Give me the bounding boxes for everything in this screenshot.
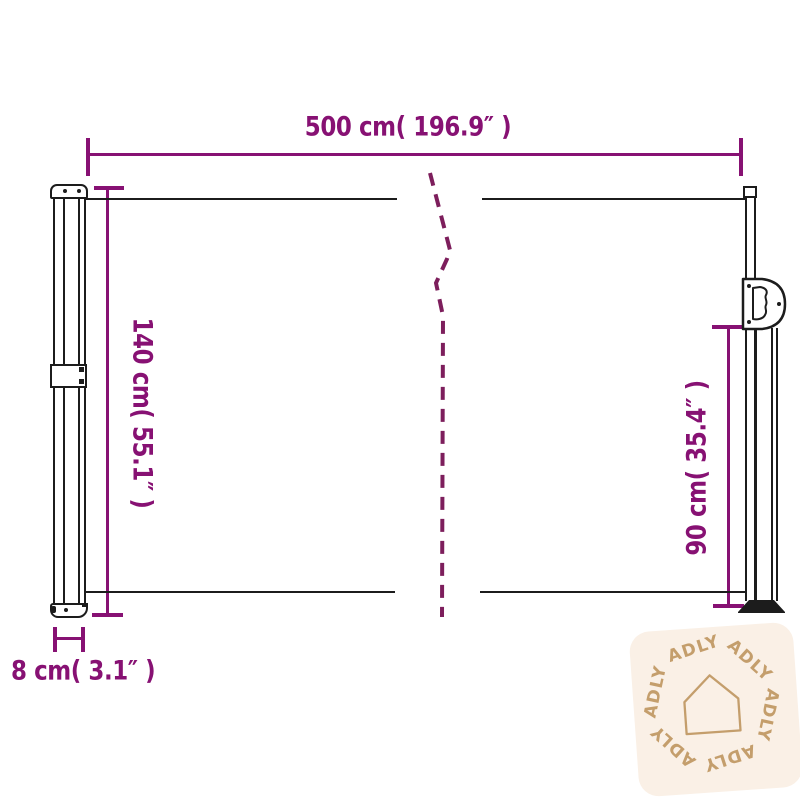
right-post-lower-profile — [755, 328, 778, 601]
width-dimension-tick-left — [86, 138, 90, 176]
height-left-dimension-line — [106, 188, 109, 616]
height-right-dimension-line — [727, 327, 730, 607]
bottom-cap-notch — [82, 603, 88, 607]
brand-text: ADLY — [752, 687, 783, 744]
bracket-notch — [79, 379, 84, 384]
screw-dot — [77, 189, 81, 193]
width-dimension-label: 500 cm( 196.9″ ) — [305, 112, 511, 143]
length-break-dashed-line — [410, 165, 470, 625]
left-pole-inner-line — [63, 198, 65, 603]
brand-text: ADLY — [640, 663, 671, 720]
awning-bottom-edge-right — [480, 591, 746, 593]
height-right-dimension-tick-top — [712, 325, 742, 329]
depth-dimension-line — [53, 637, 85, 640]
pull-handle — [740, 276, 788, 332]
right-post-top-cap — [743, 186, 757, 198]
bracket-notch — [79, 367, 84, 372]
bottom-cap-notch — [51, 606, 56, 613]
awning-top-edge-right — [482, 198, 746, 200]
width-dimension-tick-right — [739, 138, 743, 176]
height-left-dimension-tick-bottom — [92, 613, 123, 617]
house-icon — [678, 669, 744, 737]
left-pole-inner-line — [78, 198, 80, 603]
width-dimension-line — [88, 153, 741, 156]
right-post-inner-line — [771, 328, 773, 601]
screw-dot — [64, 608, 68, 612]
screw-dot — [63, 189, 67, 193]
right-post-base-plate — [736, 597, 788, 615]
brand-watermark: ADLY ADLY ADLY ADLY ADLY ADLY — [628, 621, 800, 797]
height-left-dimension-tick-top — [94, 186, 124, 190]
awning-dimension-diagram: 500 cm( 196.9″ ) 140 cm( 55.1″ ) 90 cm( … — [0, 0, 800, 800]
left-pole-top-cap — [50, 184, 88, 199]
depth-dimension-label: 8 cm( 3.1″ ) — [11, 656, 155, 687]
awning-bottom-edge-left — [86, 591, 395, 593]
brand-text: ADLY — [665, 631, 722, 667]
left-pole-body — [53, 196, 86, 605]
brand-text: ADLY — [701, 740, 758, 776]
awning-top-edge-left — [86, 198, 397, 200]
height-left-dimension-label: 140 cm( 55.1″ ) — [127, 318, 158, 509]
height-right-dimension-label: 90 cm( 35.4″ ) — [682, 380, 713, 555]
